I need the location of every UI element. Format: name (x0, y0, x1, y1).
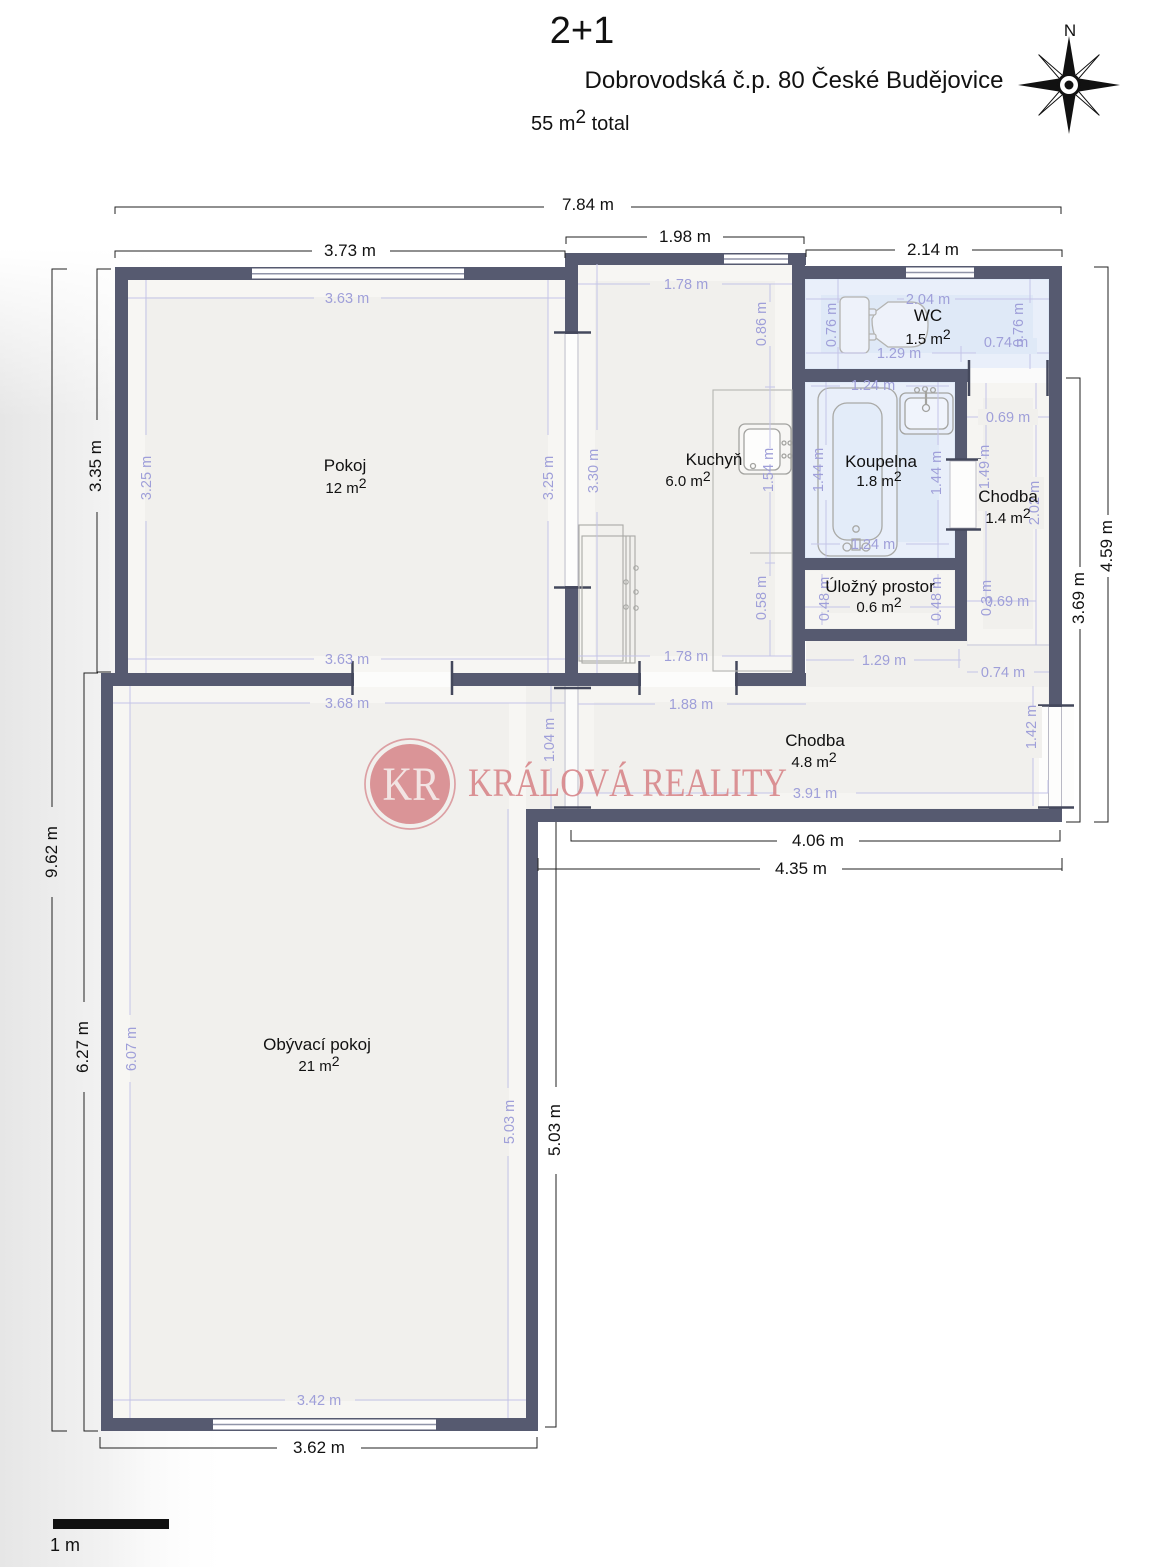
svg-text:1.24 m: 1.24 m (851, 378, 895, 394)
svg-text:1.44 m: 1.44 m (929, 451, 945, 495)
svg-text:6.27 m: 6.27 m (73, 1021, 92, 1073)
svg-text:6.07 m: 6.07 m (124, 1027, 140, 1071)
svg-text:3.68 m: 3.68 m (325, 696, 369, 712)
svg-text:1.49 m: 1.49 m (977, 445, 993, 489)
svg-text:1.54 m: 1.54 m (761, 448, 777, 492)
svg-text:1.78 m: 1.78 m (664, 277, 708, 293)
svg-text:3.35 m: 3.35 m (86, 440, 105, 492)
svg-text:KR: KR (383, 758, 440, 811)
svg-text:3.25 m: 3.25 m (541, 456, 557, 500)
svg-text:1.44 m: 1.44 m (811, 448, 827, 492)
svg-text:Chodba: Chodba (785, 731, 845, 750)
svg-text:WC: WC (914, 306, 942, 325)
svg-text:Kuchyň: Kuchyň (686, 450, 743, 469)
svg-text:3.63 m: 3.63 m (325, 291, 369, 307)
svg-text:0.86 m: 0.86 m (754, 302, 770, 346)
svg-text:0.76 m: 0.76 m (824, 303, 840, 347)
svg-text:1.29 m: 1.29 m (862, 653, 906, 669)
svg-text:0.58 m: 0.58 m (754, 576, 770, 620)
svg-text:9.62 m: 9.62 m (42, 826, 61, 878)
svg-text:4.35 m: 4.35 m (775, 859, 827, 878)
svg-text:4.59 m: 4.59 m (1097, 520, 1116, 572)
svg-text:4.06 m: 4.06 m (792, 831, 844, 850)
svg-text:N: N (1064, 21, 1076, 40)
svg-text:3.42 m: 3.42 m (297, 1393, 341, 1409)
svg-text:3.30 m: 3.30 m (586, 449, 602, 493)
svg-text:1.24 m: 1.24 m (851, 537, 895, 553)
svg-text:0.74 m: 0.74 m (984, 335, 1028, 351)
svg-text:5.03 m: 5.03 m (502, 1100, 518, 1144)
svg-text:1.78 m: 1.78 m (664, 649, 708, 665)
svg-text:Úložný prostor: Úložný prostor (825, 577, 935, 596)
svg-text:1.88 m: 1.88 m (669, 697, 713, 713)
svg-text:0.74 m: 0.74 m (981, 665, 1025, 681)
svg-text:1.04 m: 1.04 m (542, 718, 558, 762)
svg-text:0.69 m: 0.69 m (986, 410, 1030, 426)
svg-text:Dobrovodská č.p. 80 České Budě: Dobrovodská č.p. 80 České Budějovice (585, 66, 1004, 94)
svg-text:Pokoj: Pokoj (324, 456, 367, 475)
svg-text:0.69 m: 0.69 m (985, 594, 1029, 610)
svg-text:Chodba: Chodba (978, 487, 1038, 506)
svg-text:2.14 m: 2.14 m (907, 240, 959, 259)
svg-text:5.03 m: 5.03 m (545, 1104, 564, 1156)
svg-text:1.98 m: 1.98 m (659, 227, 711, 246)
svg-text:1.29 m: 1.29 m (877, 346, 921, 362)
svg-text:3.73 m: 3.73 m (324, 241, 376, 260)
svg-text:3.91 m: 3.91 m (793, 786, 837, 802)
svg-text:3.63 m: 3.63 m (325, 652, 369, 668)
svg-text:3.62 m: 3.62 m (293, 1438, 345, 1457)
svg-text:3.69 m: 3.69 m (1069, 572, 1088, 624)
svg-text:2+1: 2+1 (550, 10, 614, 52)
svg-text:Obývací pokoj: Obývací pokoj (263, 1035, 371, 1054)
svg-text:KRÁLOVÁ REALITY: KRÁLOVÁ REALITY (468, 760, 787, 805)
svg-text:1.42 m: 1.42 m (1024, 705, 1040, 749)
svg-text:7.84 m: 7.84 m (562, 195, 614, 214)
svg-text:Koupelna: Koupelna (845, 452, 917, 471)
svg-text:3.25 m: 3.25 m (139, 456, 155, 500)
svg-text:1 m: 1 m (50, 1535, 80, 1555)
